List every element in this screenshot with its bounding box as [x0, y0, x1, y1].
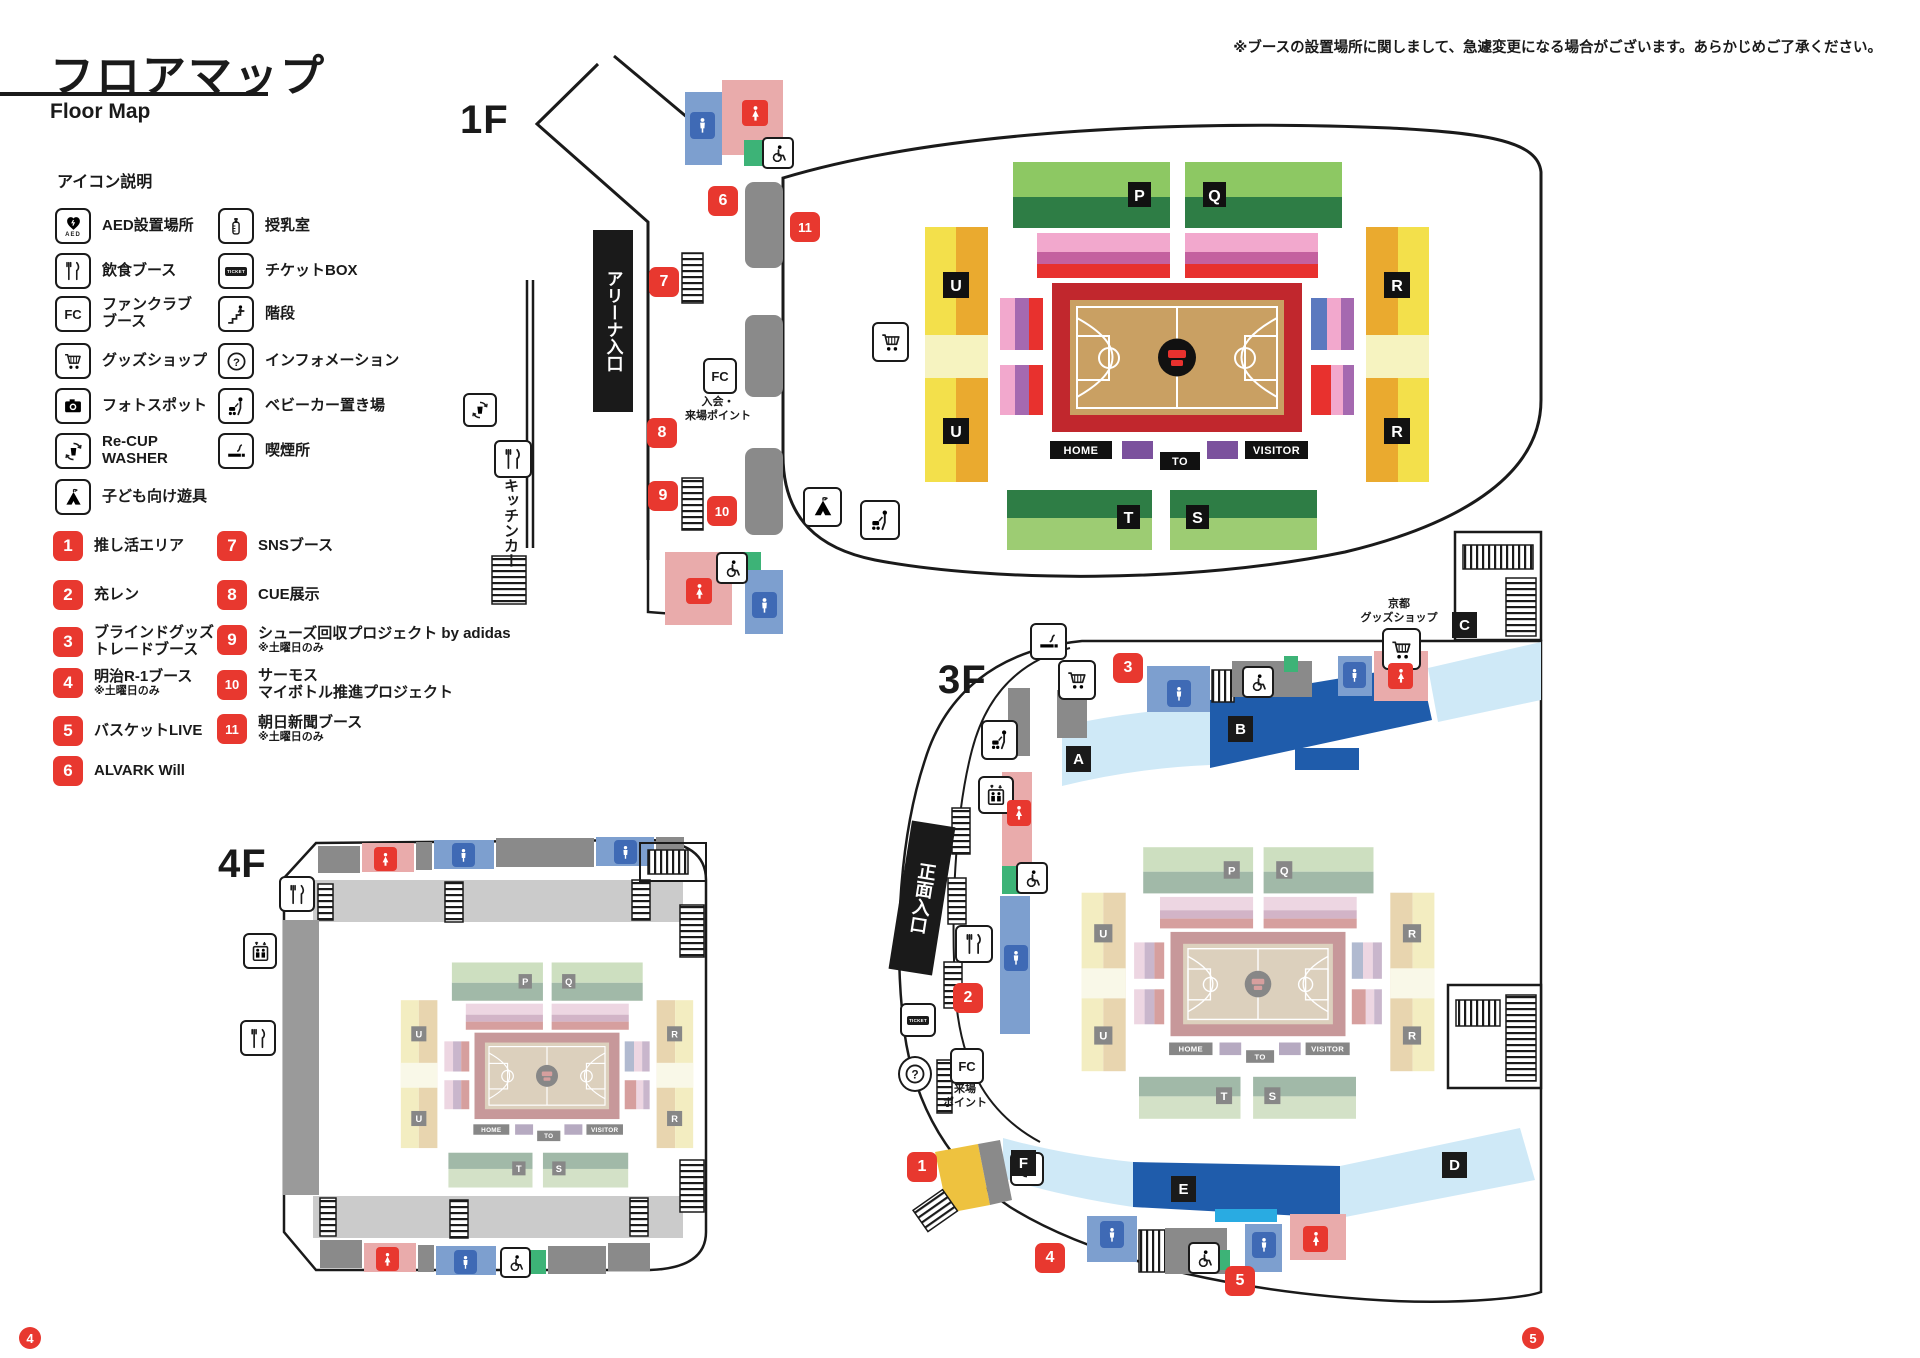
stairs — [1463, 545, 1533, 569]
stand-b-label: B — [1228, 716, 1253, 742]
map-badge-4: 4 — [1035, 1243, 1065, 1273]
map-4f — [283, 837, 706, 1275]
stairs — [318, 884, 333, 920]
stairs — [630, 1198, 648, 1236]
stand-a-label: A — [1066, 746, 1091, 772]
kitchen-car-label: キッチンカー — [500, 478, 521, 613]
stairs — [680, 1160, 704, 1212]
recup-washer-icon — [463, 393, 497, 427]
fc-visit-point-label: 来場ポイント — [915, 1083, 1015, 1111]
accessible-restroom-icon — [1016, 862, 1048, 894]
mens-restroom-icon — [1167, 680, 1191, 707]
food-booth-icon — [955, 925, 993, 963]
stairs — [948, 878, 966, 924]
mens-restroom-icon — [690, 112, 715, 139]
4f-bottom-band — [320, 1240, 650, 1275]
stairs — [632, 880, 650, 920]
womens-restroom-icon — [1007, 800, 1031, 826]
map-badge-11: 11 — [790, 212, 820, 242]
womens-restroom-icon — [1388, 663, 1413, 689]
accessible-restroom-icon — [762, 137, 794, 169]
mens-restroom-icon — [452, 843, 475, 867]
stand-e-label: E — [1171, 1176, 1196, 1202]
stairs — [680, 905, 704, 957]
3f-stair-tower-bottom — [1448, 985, 1541, 1088]
goods-shop-icon — [872, 322, 909, 362]
accessible-restroom-icon — [1242, 666, 1274, 698]
stand-d-label: D — [1442, 1152, 1467, 1178]
stand-d — [1340, 1128, 1535, 1218]
food-booth-icon — [494, 440, 532, 478]
fanclub-booth-icon: FC — [950, 1048, 984, 1084]
stairs — [445, 882, 463, 922]
ticket-box-icon: TICKET — [900, 1003, 936, 1037]
womens-restroom-icon — [686, 578, 712, 604]
map-badge-5: 5 — [1225, 1266, 1255, 1296]
floor-map-page: P Q U U — [0, 0, 1920, 1358]
stairs — [682, 253, 703, 303]
stairs — [1139, 1230, 1165, 1272]
mens-restroom-icon — [1343, 662, 1366, 688]
page-number-left: 4 — [19, 1327, 41, 1349]
stairs — [1212, 670, 1234, 702]
mens-restroom-icon — [1004, 945, 1028, 971]
floor-label-1f: 1F — [460, 98, 509, 143]
accessible-restroom-icon — [500, 1247, 531, 1278]
stairs — [1506, 578, 1536, 636]
map-badge-3: 3 — [1113, 653, 1143, 683]
stairs — [450, 1200, 468, 1238]
map-3f — [899, 532, 1541, 1302]
mens-restroom-icon — [454, 1250, 477, 1274]
map-badge-9: 9 — [648, 481, 678, 511]
accessible-block — [1284, 656, 1298, 672]
stand-c — [1428, 642, 1541, 722]
stairs — [648, 850, 688, 874]
stand-c-label: C — [1452, 612, 1477, 638]
womens-restroom-icon — [376, 1247, 399, 1271]
womens-restroom-icon — [374, 847, 397, 871]
food-booth-icon — [240, 1020, 276, 1056]
1f-kiosk-blocks — [745, 182, 783, 535]
stairs — [320, 1198, 336, 1236]
floor-label-3f: 3F — [938, 658, 987, 703]
food-booth-icon — [279, 876, 315, 912]
womens-restroom-icon — [742, 100, 768, 126]
stairs — [1506, 995, 1536, 1081]
kyoto-goods-shop-label: 京都グッズショップ — [1344, 598, 1454, 626]
stand-e-accent — [1215, 1209, 1277, 1222]
stairs — [682, 478, 703, 530]
goods-shop-icon — [1058, 660, 1096, 700]
map-badge-2: 2 — [953, 983, 983, 1013]
map-badge-1: 1 — [907, 1152, 937, 1182]
elevator-icon — [243, 933, 277, 969]
mens-restroom-icon — [1252, 1232, 1276, 1258]
accessible-restroom-icon — [1188, 1242, 1220, 1274]
floor-label-4f: 4F — [218, 842, 267, 887]
map-1f — [492, 56, 1541, 634]
page-number-right: 5 — [1522, 1327, 1544, 1349]
stroller-parking-icon — [860, 500, 900, 540]
kids-playground-icon — [803, 487, 842, 527]
mens-restroom-icon — [752, 592, 777, 618]
smoking-area-icon — [1030, 623, 1067, 660]
womens-restroom-icon — [1303, 1226, 1328, 1252]
mens-restroom-icon — [614, 840, 637, 864]
map-badge-10: 10 — [707, 496, 737, 526]
fanclub-booth-icon: FC — [703, 358, 737, 394]
accessible-restroom-icon — [716, 552, 748, 584]
stroller-parking-icon — [981, 720, 1018, 760]
map-badge-6: 6 — [708, 186, 738, 216]
arena-entrance-banner: アリーナ入口 — [593, 230, 633, 412]
mens-restroom-icon — [1100, 1221, 1124, 1248]
fc-join-point-label: 入会・来場ポイント — [663, 396, 773, 424]
stand-f-label: F — [1011, 1150, 1036, 1176]
map-badge-7: 7 — [649, 267, 679, 297]
stairs — [1456, 1000, 1500, 1026]
